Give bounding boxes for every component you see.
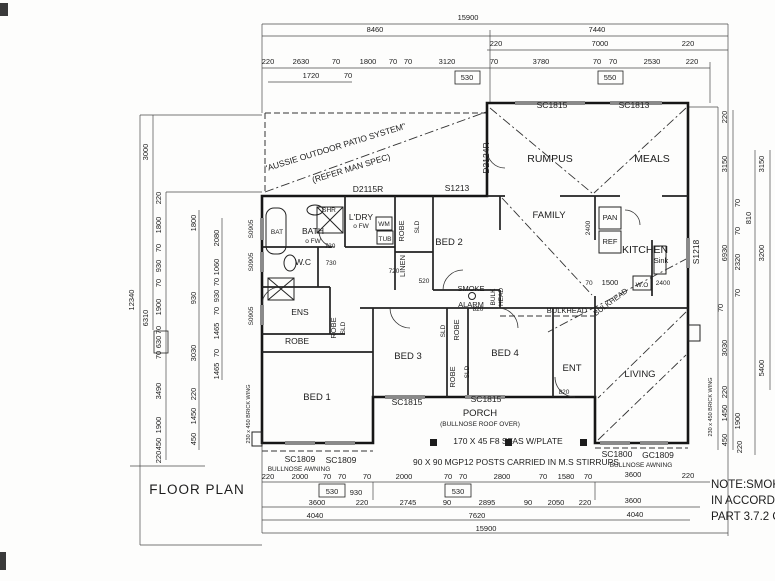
bulkhead-label: BULKHEAD <box>592 286 630 318</box>
dim-label: 3030 <box>720 340 729 357</box>
dim-label: 520 <box>419 278 430 285</box>
fixture-label-wm: WM <box>378 221 390 228</box>
bulkhead-line <box>262 316 688 451</box>
dim-label: 2400 <box>585 220 592 235</box>
dim-label: 1900 <box>154 299 163 316</box>
dim-label: 2000 <box>292 472 309 481</box>
dim-label: 3120 <box>439 57 456 66</box>
room-label-wc: W.C <box>295 257 311 267</box>
dims-bottom: 220 2000 70 70 70 2000 70 70 2800 70 158… <box>262 470 695 533</box>
code-label: SC1813 <box>619 100 650 110</box>
porch-post <box>430 439 437 446</box>
dims-left: 12340 3000 6310 220 1800 70 930 70 1900 … <box>127 144 221 464</box>
dim-label: 530 <box>452 487 465 496</box>
room-note-ldry: o FW <box>353 223 369 230</box>
dim-label: 70 <box>212 307 221 315</box>
dim-label: 3000 <box>141 144 150 161</box>
dim-label: 70 <box>716 304 725 312</box>
code-label: S0905 <box>248 306 255 325</box>
dim-label: 720 <box>325 243 336 250</box>
dim-label: 3150 <box>757 156 766 173</box>
code-label: S0905 <box>248 219 255 238</box>
dim-label: 450 <box>189 433 198 446</box>
code-label: SC1809 <box>326 455 357 465</box>
dim-label: 220 <box>579 498 592 507</box>
dim-label: 70 <box>733 199 742 207</box>
dim-label: 70 <box>584 472 592 481</box>
dim-label: 70 <box>733 227 742 235</box>
dim-label: 3600 <box>309 498 326 507</box>
patio-note-line1: "AUSSIE OUTDOOR PATIO SYSTEM" <box>263 121 406 174</box>
dim-label: 220 <box>682 39 695 48</box>
dim-lines-left <box>130 115 262 545</box>
floor-plan-sheet: 15900 8460 7440 220 7000 220 220 2630 70… <box>0 0 775 581</box>
room-label-robe: ROBE <box>329 317 338 338</box>
room-label-robe: ROBE <box>452 319 461 340</box>
dim-label: 70 <box>154 244 163 252</box>
dim-label: 730 <box>326 260 337 267</box>
dim-label: 930 <box>212 290 221 303</box>
dim-label: 530 <box>461 73 474 82</box>
code-label: S0905 <box>248 252 255 271</box>
dim-label: 930 <box>154 260 163 273</box>
dim-label: 70 <box>404 57 412 66</box>
room-label-ldry: L'DRY <box>349 212 373 222</box>
dim-label: 7440 <box>589 25 606 34</box>
smoke-alarm-symbol <box>469 293 476 300</box>
dim-label: 2320 <box>733 254 742 271</box>
room-note-bath: o FW <box>305 238 321 245</box>
room-label-bed4: BED 4 <box>491 348 518 359</box>
dim-label: 6310 <box>141 310 150 327</box>
room-label-kitchen: KITCHEN <box>622 244 668 256</box>
dim-label: 15900 <box>458 13 479 22</box>
dim-label: 8460 <box>367 25 384 34</box>
note-line: PART 3.7.2 OF <box>711 511 775 523</box>
dim-label: 4040 <box>307 511 324 520</box>
dims-right: 220 3150 6930 3030 220 1450 450 70 810 7… <box>716 111 766 454</box>
dim-label: 4040 <box>627 510 644 519</box>
code-label: SC1815 <box>471 394 502 404</box>
dim-label: 2050 <box>548 498 565 507</box>
dim-label: 220 <box>262 472 275 481</box>
dim-label: 3200 <box>757 245 766 262</box>
dim-label: 15900 <box>476 524 497 533</box>
dim-label: 70 <box>459 472 467 481</box>
room-label-ens: ENS <box>291 307 309 317</box>
dim-label: 2000 <box>396 472 413 481</box>
dim-label: 70 <box>363 472 371 481</box>
dim-label: 2895 <box>479 498 496 507</box>
code-label: D2115R <box>353 184 384 194</box>
dim-label: 70 <box>212 278 221 286</box>
dim-label: 2530 <box>644 57 661 66</box>
dim-label: 3490 <box>154 383 163 400</box>
fixture-label-tub: TUB <box>379 236 392 243</box>
dim-label: 90 <box>443 498 451 507</box>
plate-note: 170 X 45 F8 SFAS W/PLATE <box>453 436 563 446</box>
smoke-note: NOTE:SMOKE A IN ACCORDANC PART 3.7.2 OF <box>711 479 775 523</box>
dim-label: 1465 <box>212 323 221 340</box>
dim-label: 450 <box>720 434 729 447</box>
room-note-porch: (BULLNOSE ROOF OVER) <box>440 421 520 428</box>
room-label-meals: MEALS <box>634 153 670 165</box>
dim-label: 220 <box>735 441 744 454</box>
dim-label: 70 <box>323 472 331 481</box>
smoke-alarm-label: SMOKE <box>457 284 484 293</box>
dim-label: 3030 <box>189 345 198 362</box>
brick-wing-note: 230 x 450 BRICK WING <box>708 378 714 437</box>
dim-label: 70 <box>490 57 498 66</box>
dim-label: 1900 <box>733 413 742 430</box>
fixture-label-sliding-door: SLD <box>440 324 447 337</box>
dim-label: 5400 <box>757 360 766 377</box>
room-label-porch: PORCH <box>463 408 497 419</box>
dim-label: 630 <box>154 336 163 349</box>
dim-label: 12340 <box>127 290 136 311</box>
dim-label: 70 <box>332 57 340 66</box>
brick-wing-left <box>252 432 262 446</box>
code-label: SC1809 <box>285 454 316 464</box>
dim-label: 70 <box>609 57 617 66</box>
dim-label: 70 <box>344 71 352 80</box>
dim-label: 3600 <box>625 496 642 505</box>
room-label-bath: BATH <box>302 226 324 236</box>
smoke-alarm-label: ALARM <box>458 300 484 309</box>
dim-label: 1800 <box>360 57 377 66</box>
dim-label: 70 <box>338 472 346 481</box>
fixture-label-sliding-door: SLD <box>464 365 471 378</box>
dim-label: 220 <box>682 471 695 480</box>
dim-label: 70 <box>212 349 221 357</box>
dim-label: 1900 <box>154 417 163 434</box>
dim-label: 3150 <box>720 156 729 173</box>
dim-label: 450 <box>154 438 163 451</box>
code-label: SC1815 <box>537 100 568 110</box>
posts-note: 90 X 90 MGP12 POSTS CARRIED IN M.S STIRR… <box>413 457 619 467</box>
dim-label: 810 <box>744 212 753 225</box>
ceiling-diagonals <box>265 108 688 440</box>
dim-label: 220 <box>720 111 729 124</box>
dim-label: 70 <box>539 472 547 481</box>
fixture-label-oven: W.O <box>636 282 649 289</box>
dim-label: 820 <box>559 389 570 396</box>
floor-plan-drawing: 15900 8460 7440 220 7000 220 220 2630 70… <box>0 0 775 581</box>
bulkhead-label: BULKHEAD <box>547 306 588 315</box>
note-line: IN ACCORDANC <box>711 495 775 507</box>
dim-label: 220 <box>686 57 699 66</box>
dim-label: 6930 <box>720 245 729 262</box>
dim-label: 70 <box>444 472 452 481</box>
room-label-robe: ROBE <box>285 336 309 346</box>
room-label-robe: ROBE <box>448 366 457 387</box>
dim-label: 550 <box>604 73 617 82</box>
dim-label: 2080 <box>212 230 221 247</box>
dim-label: 3780 <box>533 57 550 66</box>
page-title: FLOOR PLAN <box>149 482 245 497</box>
room-label-bed3: BED 3 <box>394 351 421 362</box>
fixture-label-bath-tub: BAT <box>271 229 283 236</box>
fixture-label-shower: SHR <box>322 207 336 214</box>
dim-label: 7620 <box>469 511 486 520</box>
dim-label: 2400 <box>656 280 671 287</box>
fixture-label-pantry: PAN <box>603 213 618 222</box>
room-label-bed1: BED 1 <box>303 392 330 403</box>
dim-label: 2745 <box>400 498 417 507</box>
dim-label: 930 <box>350 488 363 497</box>
dim-label: 220 <box>154 192 163 205</box>
brick-wing-note: 230 x 450 BRICK WING <box>246 385 252 444</box>
scan-artifact <box>0 552 6 570</box>
dim-label: 220 <box>356 498 369 507</box>
dim-label: 220 <box>154 451 163 464</box>
code-label: D2124R <box>481 142 491 173</box>
room-label-living: LIVING <box>624 369 655 380</box>
dim-label: 2630 <box>293 57 310 66</box>
dim-label: 70 <box>733 289 742 297</box>
dim-label: 70 <box>154 326 163 334</box>
dim-label: 70 <box>154 279 163 287</box>
awning-note: BULLNOSE AWNING <box>610 462 673 469</box>
dim-label: 220 <box>490 39 503 48</box>
code-label: SC1815 <box>392 397 423 407</box>
bulkhead-label: BULK <box>490 288 497 306</box>
dim-label: 1800 <box>154 217 163 234</box>
dim-label: 220 <box>720 386 729 399</box>
dim-label: 70 <box>585 280 593 287</box>
note-line: NOTE:SMOKE A <box>711 479 775 491</box>
dim-label: 90 <box>524 498 532 507</box>
fixture-label-sink: Sink <box>654 256 669 265</box>
dim-label: 1800 <box>189 215 198 232</box>
dim-label: 1450 <box>189 408 198 425</box>
porch-post <box>580 439 587 446</box>
dim-label: 1500 <box>602 278 619 287</box>
awning-note: BULLNOSE AWNING <box>268 466 331 473</box>
dim-label: 2800 <box>494 472 511 481</box>
fixture-label-sliding-door: SLD <box>340 321 347 334</box>
dim-label: 1450 <box>720 405 729 422</box>
bulkhead-label: HEAD <box>498 288 505 306</box>
dim-label: 1060 <box>212 259 221 276</box>
dim-label: 220 <box>262 57 275 66</box>
fixture-label-fridge: REF <box>603 237 618 246</box>
dim-label: 3600 <box>625 470 642 479</box>
dim-label: 1465 <box>212 363 221 380</box>
scan-artifact <box>0 3 8 16</box>
room-label-linen: LINEN <box>398 255 407 277</box>
room-label-ent: ENT <box>563 363 582 374</box>
room-label-robe: ROBE <box>397 220 406 241</box>
fixture-label-sliding-door: SLD <box>414 220 421 233</box>
brick-wing-right <box>688 325 700 341</box>
dim-label: 70 <box>593 57 601 66</box>
code-label: GC1809 <box>642 450 674 460</box>
dim-label: 70 <box>389 57 397 66</box>
patio-note-line2: (REFER MAN SPEC) <box>311 151 392 184</box>
dim-label: 530 <box>326 487 339 496</box>
dim-label: 220 <box>189 388 198 401</box>
dim-label: 1580 <box>558 472 575 481</box>
dim-label: 1720 <box>303 71 320 80</box>
code-label: S1218 <box>691 239 701 264</box>
dim-label: 7000 <box>592 39 609 48</box>
dim-label: 930 <box>189 292 198 305</box>
room-label-rumpus: RUMPUS <box>527 153 573 165</box>
dim-label: 70 <box>154 351 163 359</box>
code-label: S1213 <box>445 183 470 193</box>
room-label-bed2: BED 2 <box>435 237 462 248</box>
room-label-family: FAMILY <box>532 210 566 221</box>
